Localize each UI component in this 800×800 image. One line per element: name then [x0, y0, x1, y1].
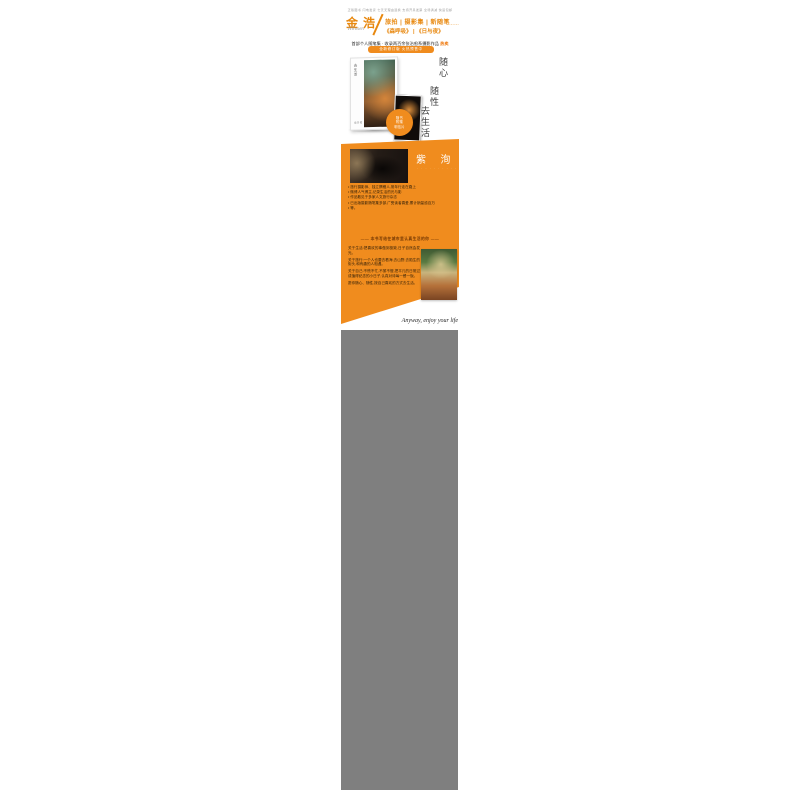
intro-paragraph: 关于自己:不慌不忙,不紧不慢,把平凡的日常过成值得纪念的小日子,认真对待每一餐一… — [348, 269, 420, 278]
image-placeholder — [341, 330, 458, 790]
slogan-vertical-1: 随心 — [437, 57, 450, 79]
subtitle-highlight: 热卖 — [440, 41, 448, 46]
intro-paragraph: 关于旅行:一个人也要去看海,去山野,去陌生的街头,和有趣的人相遇。 — [348, 258, 420, 267]
section-divider-quote: —— 本书写给在城市里认真生活的你 —— — [341, 237, 459, 242]
author-script-name: Hirosen — [348, 27, 364, 32]
author-name-dots: · · · · · · · · · · — [417, 166, 457, 170]
title-ellipsis: …… — [449, 21, 459, 27]
author-bio-list: 旅行摄影师、独立撰稿人,常年行走在路上 微博人气博主,记录生活的光与影 作品散见… — [348, 185, 453, 211]
book-cover-title: 去生活 — [354, 63, 359, 77]
intro-paragraph: 关于生活:把喜欢的事做到极致,日子自然会发光。 — [348, 246, 420, 255]
header-microcopy: 正版图书 闪电发货 七天无理由退换 支持开具发票 全场满减 快递包邮 — [341, 8, 459, 12]
promo-pill-badge: 全新修订版 火热预售中 — [368, 46, 434, 53]
intro-paragraph: 愿你随心、随性,按自己喜欢的方式去生活。 — [348, 281, 420, 286]
author-title-tags: 旅拍 | 摄影集 | 新随笔 — [385, 17, 450, 26]
slogan-vertical-2: 随性 — [428, 86, 441, 108]
product-detail-page: 正版图书 闪电发货 七天无理由退换 支持开具发票 全场满减 快递包邮 金浩 旅拍… — [0, 0, 800, 800]
book-intro-paragraphs: 关于生活:把喜欢的事做到极致,日子自然会发光。 关于旅行:一个人也要去看海,去山… — [348, 246, 420, 288]
slogan-vertical-3: 去生活 — [419, 106, 432, 139]
gift-badge: 随书 附赠 明信片 — [386, 109, 413, 136]
author-bio-item: 等。 — [348, 206, 453, 211]
interior-photo — [421, 249, 457, 300]
book-cover-caption: 金浩 著 — [354, 121, 363, 125]
handwritten-signature: Anyway, enjoy your life — [388, 318, 458, 324]
author-works: 《森呼吸》 | 《日与夜》 — [384, 27, 444, 35]
author-photo — [350, 149, 408, 183]
author-name: 紫 洵 — [416, 151, 457, 166]
gift-badge-line: 明信片 — [386, 125, 413, 129]
